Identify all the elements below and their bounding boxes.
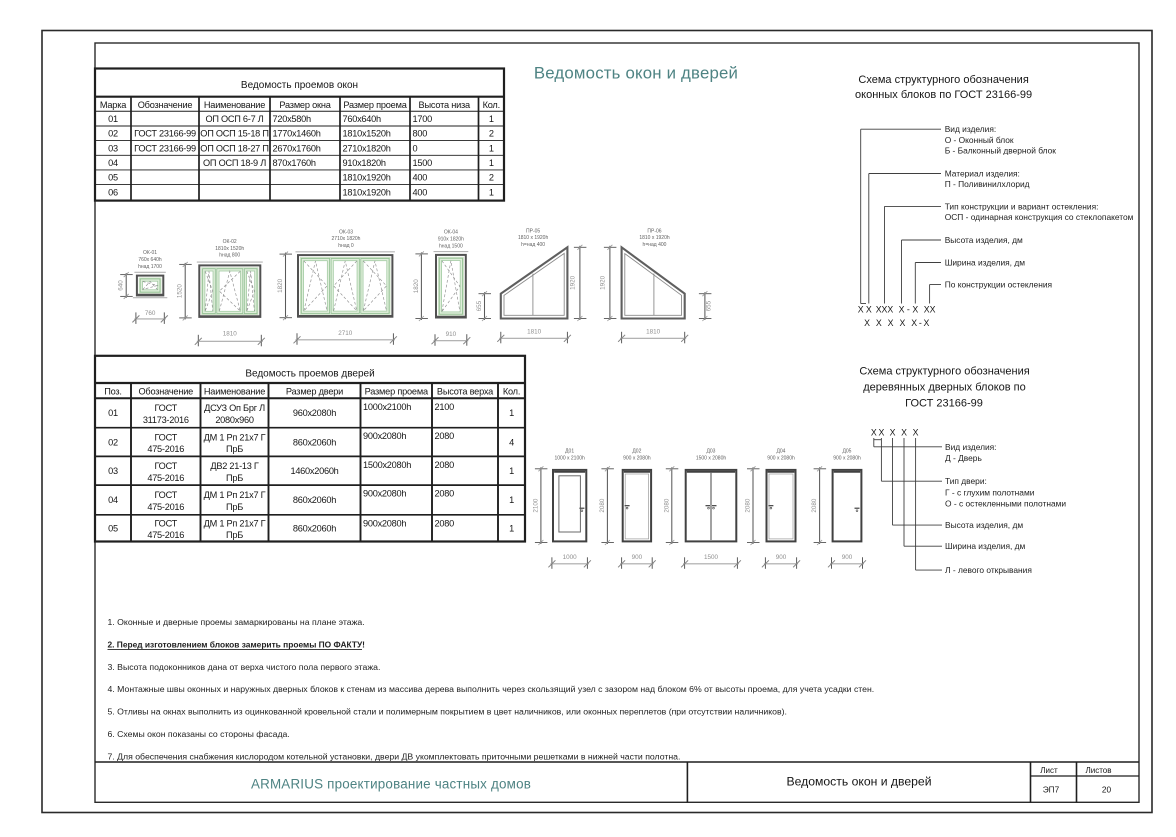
svg-text:1500 x 2080h: 1500 x 2080h: [696, 455, 727, 461]
svg-text:655: 655: [706, 300, 713, 311]
svg-text:04: 04: [108, 495, 118, 505]
svg-text:П - Поливинилхлорид: П - Поливинилхлорид: [945, 179, 1030, 189]
svg-text:Схема структурного обозначения: Схема структурного обозначения: [858, 74, 1028, 86]
svg-text:Высота изделия, дм: Высота изделия, дм: [945, 520, 1023, 530]
svg-text:1810 x 1920h: 1810 x 1920h: [518, 235, 549, 241]
svg-text:2080: 2080: [435, 431, 455, 441]
svg-text:ПрБ: ПрБ: [226, 444, 243, 454]
svg-text:1: 1: [489, 143, 494, 153]
svg-text:Листов: Листов: [1086, 766, 1112, 775]
svg-text:ОК-04: ОК-04: [444, 230, 458, 236]
svg-text:1770x1460h: 1770x1460h: [273, 129, 321, 139]
svg-text:Размер проема: Размер проема: [365, 387, 429, 397]
svg-text:ОСП - одинарная конструкция со: ОСП - одинарная конструкция со стеклопак…: [945, 212, 1134, 222]
svg-text:2: 2: [489, 173, 494, 183]
svg-text:640: 640: [118, 280, 125, 291]
svg-text:ОП ОСП 15-18 П: ОП ОСП 15-18 П: [200, 129, 268, 139]
svg-text:Вид изделия:: Вид изделия:: [945, 442, 997, 452]
svg-text:Ведомость проемов окон: Ведомость проемов окон: [241, 80, 358, 91]
svg-text:900 x 2080h: 900 x 2080h: [623, 455, 651, 461]
svg-text:ГОСТ 23166-99: ГОСТ 23166-99: [134, 143, 196, 153]
svg-text:860x2060h: 860x2060h: [293, 523, 336, 533]
svg-text:900x2080h: 900x2080h: [363, 431, 406, 441]
svg-text:Х: Х: [858, 304, 864, 314]
svg-text:1: 1: [489, 114, 494, 124]
svg-text:1920: 1920: [570, 275, 577, 290]
svg-text:ПрБ: ПрБ: [226, 502, 243, 512]
svg-text:2080: 2080: [435, 460, 455, 470]
svg-text:Д01: Д01: [565, 448, 574, 454]
svg-text:400: 400: [413, 187, 428, 197]
svg-text:ПрБ: ПрБ: [226, 530, 243, 540]
svg-text:1460x2060h: 1460x2060h: [290, 466, 338, 476]
svg-text:1810x1520h: 1810x1520h: [343, 129, 391, 139]
svg-text:900: 900: [776, 554, 787, 561]
svg-text:О - с остекленными полотнами: О - с остекленными полотнами: [945, 499, 1066, 509]
svg-text:4: 4: [509, 437, 514, 447]
svg-text:ОК-02: ОК-02: [223, 239, 237, 245]
svg-text:ДВ2 21-13 Г: ДВ2 21-13 Г: [210, 461, 259, 471]
svg-text:2080: 2080: [435, 489, 455, 499]
svg-text:ХХХ: ХХХ: [876, 304, 894, 314]
svg-text:900x2080h: 900x2080h: [363, 518, 406, 528]
svg-text:2080: 2080: [811, 498, 818, 513]
svg-text:1810x1920h: 1810x1920h: [343, 173, 391, 183]
svg-text:Х: Х: [899, 304, 905, 314]
svg-text:1: 1: [489, 187, 494, 197]
svg-text:1810: 1810: [223, 331, 238, 338]
svg-text:2100: 2100: [532, 498, 539, 513]
svg-text:475-2016: 475-2016: [147, 473, 184, 483]
svg-text:Кол.: Кол.: [483, 100, 500, 110]
svg-text:7. Для обеспечения снабжения к: 7. Для обеспечения снабжения кислородом …: [108, 751, 681, 761]
svg-text:06: 06: [108, 187, 118, 197]
svg-text:1500: 1500: [704, 554, 719, 561]
svg-text:Г - с глухим полотнами: Г - с глухим полотнами: [945, 487, 1035, 497]
svg-text:Д02: Д02: [632, 448, 641, 454]
svg-text:1: 1: [509, 466, 514, 476]
svg-text:ГОСТ 23166-99: ГОСТ 23166-99: [905, 398, 983, 410]
svg-text:2080х960: 2080х960: [215, 415, 254, 425]
svg-text:h=над 400: h=над 400: [521, 242, 545, 248]
svg-text:ДМ 1 Рп 21х7 Г: ДМ 1 Рп 21х7 Г: [204, 490, 266, 500]
svg-text:900: 900: [632, 554, 643, 561]
svg-text:ХХ: ХХ: [924, 304, 936, 314]
svg-text:Тип двери:: Тип двери:: [945, 476, 987, 486]
svg-text:Х: Х: [912, 304, 918, 314]
svg-text:Ширина изделия, дм: Ширина изделия, дм: [945, 258, 1026, 268]
svg-text:Марка: Марка: [100, 100, 127, 110]
svg-text:01: 01: [108, 114, 118, 124]
svg-text:Материал изделия:: Материал изделия:: [945, 169, 1020, 179]
svg-text:Х: Х: [911, 318, 917, 328]
svg-text:01: 01: [108, 408, 118, 418]
svg-text:ГОСТ: ГОСТ: [154, 432, 177, 442]
svg-text:03: 03: [108, 143, 118, 153]
svg-text:ОП ОСП 18-27 П: ОП ОСП 18-27 П: [200, 143, 268, 153]
svg-text:Высота верха: Высота верха: [437, 387, 494, 397]
svg-text:2080: 2080: [663, 498, 670, 513]
svg-text:2100: 2100: [435, 402, 455, 412]
svg-text:ПрБ: ПрБ: [226, 473, 243, 483]
svg-text:910: 910: [446, 331, 457, 338]
svg-text:Наименование: Наименование: [204, 387, 265, 397]
svg-text:Х: Х: [876, 318, 882, 328]
svg-text:Х: Х: [923, 318, 929, 328]
svg-text:2710x 1820h: 2710x 1820h: [332, 236, 361, 242]
svg-text:Л - левого открывания: Л - левого открывания: [945, 565, 1032, 575]
svg-text:2: 2: [489, 129, 494, 139]
svg-text:720x580h: 720x580h: [273, 114, 312, 124]
svg-text:655: 655: [476, 300, 483, 311]
svg-text:Ведомость проемов дверей: Ведомость проемов дверей: [245, 368, 374, 379]
svg-text:1810x 1520h: 1810x 1520h: [215, 246, 244, 252]
svg-text:2080: 2080: [745, 498, 752, 513]
svg-text:2710x1820h: 2710x1820h: [343, 143, 391, 153]
svg-text:1500: 1500: [413, 158, 433, 168]
svg-text:Х: Х: [866, 304, 872, 314]
svg-text:1520: 1520: [177, 284, 184, 299]
svg-text:ГОСТ: ГОСТ: [154, 490, 177, 500]
svg-text:Размер двери: Размер двери: [286, 387, 343, 397]
svg-text:оконных блоков по ГОСТ 23166-9: оконных блоков по ГОСТ 23166-99: [855, 89, 1032, 101]
svg-text:Х: Х: [878, 427, 884, 437]
svg-text:2710: 2710: [338, 330, 353, 337]
svg-text:ОК-01: ОК-01: [143, 250, 157, 256]
svg-text:Вид изделия:: Вид изделия:: [945, 124, 997, 134]
svg-text:Д05: Д05: [843, 448, 852, 454]
svg-text:475-2016: 475-2016: [147, 502, 184, 512]
svg-text:1: 1: [509, 523, 514, 533]
svg-text:ARMARIUS проектирование частны: ARMARIUS проектирование частных домов: [251, 777, 531, 792]
svg-text:Лист: Лист: [1040, 766, 1058, 775]
svg-text:900x2080h: 900x2080h: [363, 489, 406, 499]
svg-text:31173-2016: 31173-2016: [143, 415, 189, 425]
svg-text:Обозначение: Обозначение: [138, 387, 193, 397]
svg-text:02: 02: [108, 437, 118, 447]
svg-text:ОП ОСП 6-7 Л: ОП ОСП 6-7 Л: [205, 114, 263, 124]
svg-text:03: 03: [108, 466, 118, 476]
svg-text:Х: Х: [864, 318, 870, 328]
svg-text:ДСУЗ Оп Брг Л: ДСУЗ Оп Брг Л: [204, 403, 265, 413]
svg-text:Наименование: Наименование: [204, 100, 265, 110]
svg-text:5. Отливы на окнах выполнить и: 5. Отливы на окнах выполнить из оцинкова…: [108, 707, 787, 717]
svg-text:1820: 1820: [413, 279, 420, 294]
svg-text:Х: Х: [888, 318, 894, 328]
svg-text:1000 x 2100h: 1000 x 2100h: [554, 455, 585, 461]
svg-text:3. Высота подоконников дана от: 3. Высота подоконников дана от верха чис…: [108, 662, 381, 672]
svg-text:900 x 2080h: 900 x 2080h: [767, 455, 795, 461]
svg-text:2670x1760h: 2670x1760h: [273, 143, 321, 153]
svg-text:1810x1920h: 1810x1920h: [343, 187, 391, 197]
svg-text:05: 05: [108, 523, 118, 533]
svg-text:Д04: Д04: [777, 448, 786, 454]
svg-text:Обозначение: Обозначение: [138, 100, 193, 110]
svg-text:По конструкции остекления: По конструкции остекления: [945, 280, 1052, 290]
svg-text:04: 04: [108, 158, 118, 168]
svg-text:960x2080h: 960x2080h: [293, 408, 336, 418]
svg-text:1500x2080h: 1500x2080h: [363, 460, 411, 470]
svg-text:Х: Х: [901, 427, 907, 437]
svg-text:ОП ОСП 18-9 Л: ОП ОСП 18-9 Л: [203, 158, 266, 168]
svg-text:760x 640h: 760x 640h: [138, 257, 162, 263]
svg-text:hнад 0: hнад 0: [338, 243, 354, 249]
svg-text:910x 1820h: 910x 1820h: [438, 237, 464, 243]
svg-text:Кол.: Кол.: [503, 387, 520, 397]
svg-text:860x2060h: 860x2060h: [293, 495, 336, 505]
svg-text:1000: 1000: [563, 554, 578, 561]
svg-text:900 x 2080h: 900 x 2080h: [833, 455, 861, 461]
svg-text:Высота изделия, дм: Высота изделия, дм: [945, 235, 1023, 245]
svg-text:деревянных дверных блоков по: деревянных дверных блоков по: [863, 382, 1025, 394]
svg-text:475-2016: 475-2016: [147, 530, 184, 540]
svg-text:Размер окна: Размер окна: [279, 100, 331, 110]
svg-text:800: 800: [413, 129, 428, 139]
svg-text:860x2060h: 860x2060h: [293, 437, 336, 447]
svg-text:Ведомость окон и дверей: Ведомость окон и дверей: [786, 774, 931, 788]
svg-text:-: -: [907, 304, 910, 314]
svg-text:05: 05: [108, 173, 118, 183]
svg-text:Размер проема: Размер проема: [343, 100, 407, 110]
svg-text:400: 400: [413, 173, 428, 183]
svg-text:870x1760h: 870x1760h: [273, 158, 316, 168]
svg-text:ГОСТ: ГОСТ: [154, 518, 177, 528]
svg-text:1820: 1820: [277, 278, 284, 293]
svg-text:1: 1: [509, 408, 514, 418]
svg-text:900: 900: [842, 554, 853, 561]
svg-text:ЭП7: ЭП7: [1043, 784, 1060, 794]
svg-text:ПР-05: ПР-05: [526, 228, 540, 234]
svg-text:Д - Дверь: Д - Дверь: [945, 453, 982, 463]
svg-text:ГОСТ: ГОСТ: [154, 403, 177, 413]
svg-text:1810: 1810: [527, 328, 542, 335]
svg-text:2080: 2080: [599, 498, 606, 513]
svg-text:Ширина изделия, дм: Ширина изделия, дм: [945, 541, 1026, 551]
svg-text:1810: 1810: [646, 328, 661, 335]
svg-text:1. Оконные и дверные проемы за: 1. Оконные и дверные проемы замаркирован…: [108, 617, 365, 627]
svg-text:910x1820h: 910x1820h: [343, 158, 386, 168]
svg-text:Схема структурного обозначения: Схема структурного обозначения: [859, 366, 1029, 378]
svg-text:Высота низа: Высота низа: [419, 100, 472, 110]
svg-text:1920: 1920: [599, 275, 606, 290]
svg-text:4. Монтажные швы оконных и нар: 4. Монтажные швы оконных и наружных двер…: [108, 684, 875, 694]
svg-text:Х: Х: [871, 427, 877, 437]
svg-text:ДМ 1 Рп 21х7 Г: ДМ 1 Рп 21х7 Г: [204, 518, 266, 528]
svg-text:Х: Х: [899, 318, 905, 328]
svg-text:Ведомость окон и дверей: Ведомость окон и дверей: [534, 64, 738, 83]
svg-text:1810 x 1920h: 1810 x 1920h: [639, 235, 670, 241]
svg-text:-: -: [919, 318, 922, 328]
svg-text:760: 760: [145, 310, 156, 317]
svg-text:1: 1: [509, 495, 514, 505]
svg-text:02: 02: [108, 129, 118, 139]
svg-text:h=над 400: h=над 400: [643, 242, 667, 248]
svg-text:hнад 1500: hнад 1500: [439, 243, 463, 249]
svg-text:2. Перед изготовлением блоков: 2. Перед изготовлением блоков замерить п…: [108, 639, 365, 649]
svg-text:Х: Х: [913, 427, 919, 437]
svg-text:ГОСТ: ГОСТ: [154, 461, 177, 471]
svg-text:ДМ 1 Рп 21х7 Г: ДМ 1 Рп 21х7 Г: [204, 432, 266, 442]
svg-text:20: 20: [1102, 784, 1112, 794]
svg-text:Д03: Д03: [707, 448, 716, 454]
svg-text:475-2016: 475-2016: [147, 444, 184, 454]
svg-text:1000x2100h: 1000x2100h: [363, 402, 411, 412]
svg-text:ОК-03: ОК-03: [339, 229, 353, 235]
svg-text:Х: Х: [890, 427, 896, 437]
svg-text:2080: 2080: [435, 518, 455, 528]
svg-text:Тип конструкции и вариант осте: Тип конструкции и вариант остекления:: [945, 201, 1099, 211]
svg-text:О - Оконный блок: О - Оконный блок: [945, 135, 1014, 145]
svg-text:hнад 800: hнад 800: [219, 253, 240, 259]
svg-text:1700: 1700: [413, 114, 433, 124]
svg-text:ГОСТ 23166-99: ГОСТ 23166-99: [134, 129, 196, 139]
svg-text:760x640h: 760x640h: [343, 114, 382, 124]
svg-text:6. Схемы окон показаны со стор: 6. Схемы окон показаны со стороны фасада…: [108, 729, 290, 739]
svg-text:Поз.: Поз.: [104, 387, 122, 397]
svg-text:hнад 1700: hнад 1700: [138, 264, 162, 270]
svg-text:1: 1: [489, 158, 494, 168]
svg-text:Б - Балконный дверной блок: Б - Балконный дверной блок: [945, 145, 1057, 155]
svg-text:0: 0: [413, 143, 418, 153]
svg-text:ПР-06: ПР-06: [647, 228, 661, 234]
